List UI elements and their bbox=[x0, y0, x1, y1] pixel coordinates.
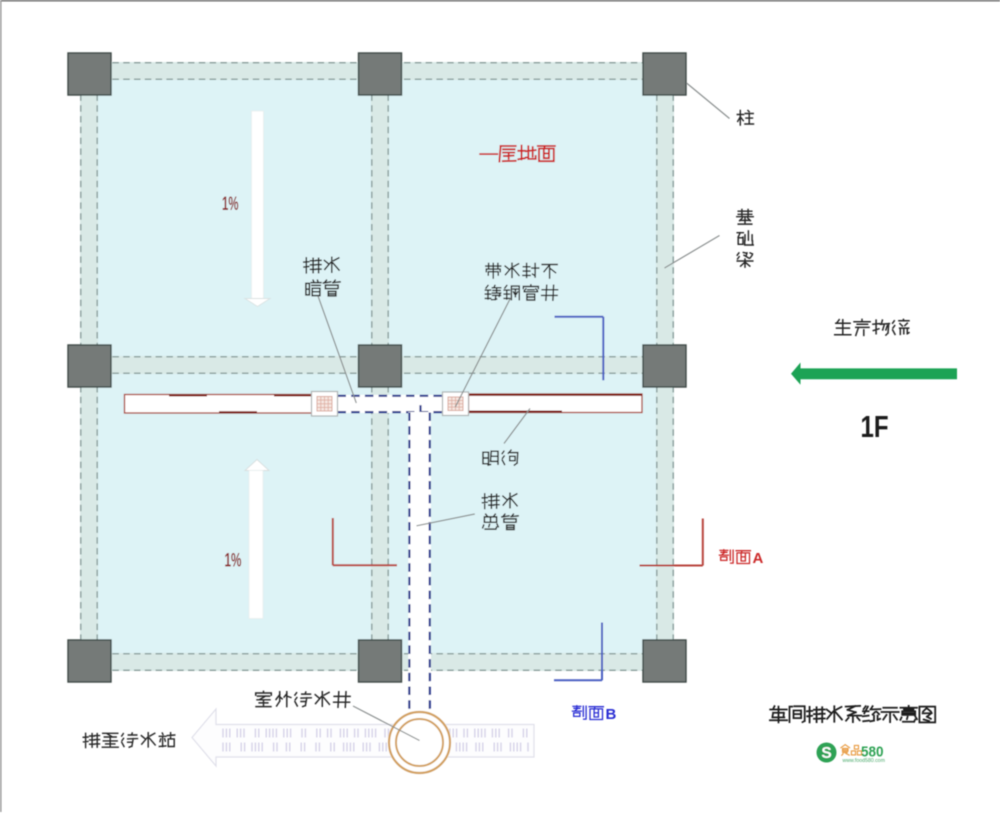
svg-text:1%: 1% bbox=[225, 551, 242, 572]
svg-text:A: A bbox=[753, 550, 764, 567]
svg-text:www.food580.com: www.food580.com bbox=[843, 758, 885, 764]
svg-text:1%: 1% bbox=[222, 194, 239, 215]
svg-text:B: B bbox=[606, 706, 617, 723]
svg-text:S: S bbox=[821, 745, 831, 762]
svg-text:1F: 1F bbox=[861, 410, 889, 444]
